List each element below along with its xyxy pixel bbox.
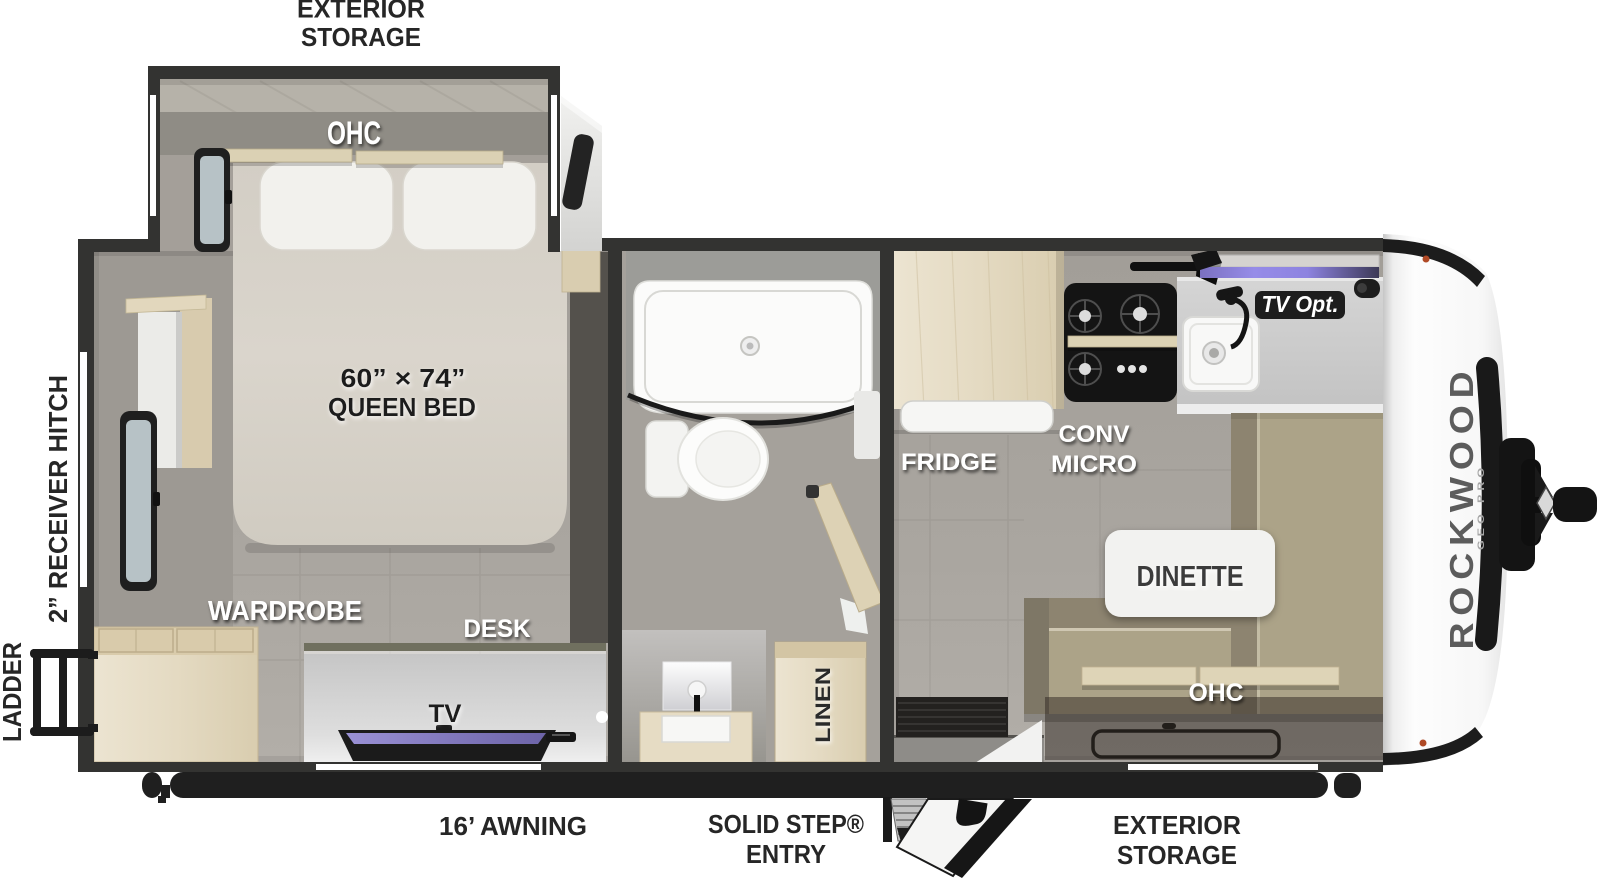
svg-text:GEO PRO: GEO PRO	[1476, 464, 1487, 550]
svg-text:16’ AWNING: 16’ AWNING	[439, 811, 587, 841]
svg-text:WARDROBE: WARDROBE	[208, 595, 362, 626]
svg-text:CONV: CONV	[1059, 421, 1130, 448]
svg-text:EXTERIOR: EXTERIOR	[297, 0, 425, 24]
svg-text:EXTERIOR: EXTERIOR	[1113, 810, 1241, 840]
svg-text:FRIDGE: FRIDGE	[901, 449, 997, 476]
svg-text:60” × 74”: 60” × 74”	[341, 363, 466, 393]
svg-text:OHC: OHC	[1189, 679, 1244, 707]
svg-text:MICRO: MICRO	[1051, 451, 1137, 478]
svg-text:TV: TV	[429, 700, 462, 728]
svg-text:LADDER: LADDER	[0, 642, 27, 742]
svg-text:TV Opt.: TV Opt.	[1262, 291, 1339, 317]
svg-text:LINEN: LINEN	[812, 667, 835, 743]
svg-text:STORAGE: STORAGE	[1117, 840, 1237, 870]
svg-text:2” RECEIVER HITCH: 2” RECEIVER HITCH	[43, 375, 73, 623]
svg-text:ENTRY: ENTRY	[746, 839, 826, 869]
svg-text:STORAGE: STORAGE	[301, 22, 421, 52]
svg-text:DINETTE: DINETTE	[1137, 561, 1244, 593]
svg-text:QUEEN BED: QUEEN BED	[328, 392, 476, 422]
svg-text:ROCKWOOD: ROCKWOOD	[1443, 365, 1480, 650]
svg-text:OHC: OHC	[327, 115, 381, 151]
svg-text:SOLID STEP®: SOLID STEP®	[708, 809, 864, 839]
svg-text:DESK: DESK	[464, 615, 531, 643]
